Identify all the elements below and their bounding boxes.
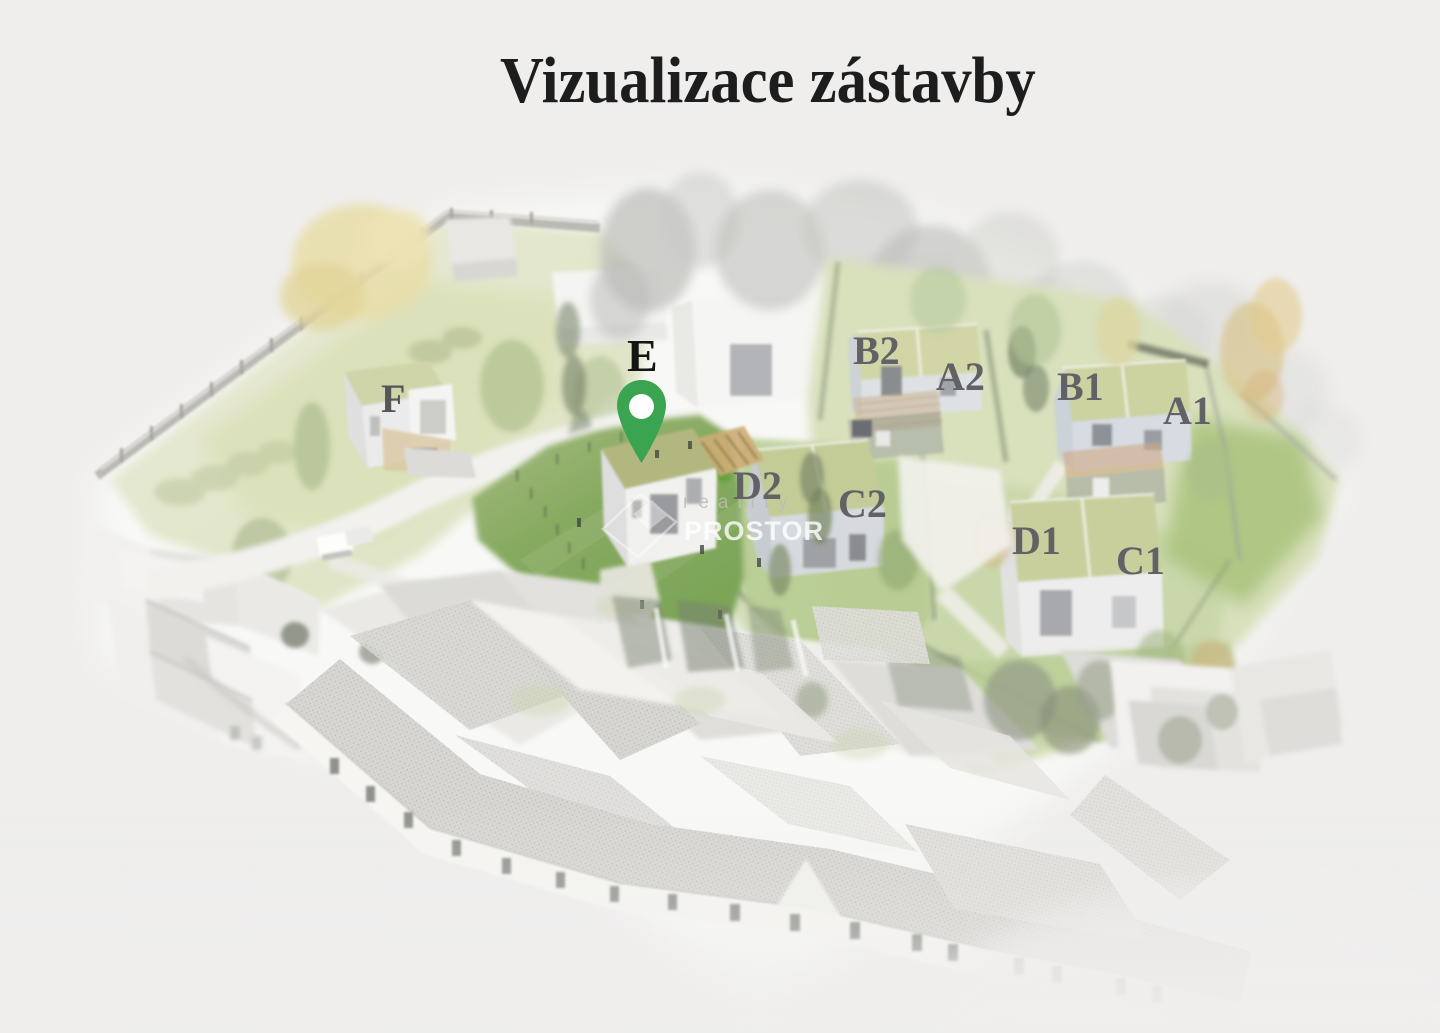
- svg-text:E: E: [627, 330, 658, 381]
- svg-text:C2: C2: [838, 481, 887, 526]
- svg-text:PROSTOR: PROSTOR: [684, 516, 824, 546]
- svg-text:B2: B2: [853, 328, 900, 373]
- svg-text:F: F: [381, 376, 405, 421]
- svg-text:D1: D1: [1012, 518, 1061, 563]
- svg-text:B1: B1: [1057, 364, 1104, 409]
- svg-text:C1: C1: [1116, 538, 1165, 583]
- svg-text:A2: A2: [936, 354, 985, 399]
- svg-text:D2: D2: [733, 463, 782, 508]
- svg-text:A1: A1: [1163, 388, 1212, 433]
